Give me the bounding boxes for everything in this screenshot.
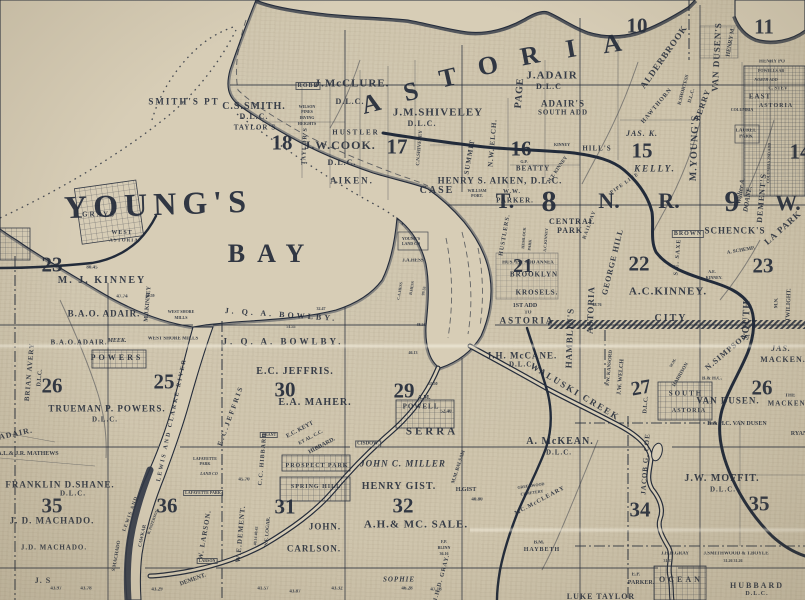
map-label: J.M.SHIVELEY: [393, 108, 483, 119]
map-label: 43.29: [151, 588, 162, 593]
map-label: DOANE.: [742, 185, 753, 212]
map-label: E.C. JEFFRIS.: [256, 367, 333, 377]
map-label: MEEK.: [108, 338, 127, 344]
map-label: C. STEV: [768, 87, 787, 92]
map-label: J.W. WELCH: [616, 359, 625, 395]
map-label: D.L.C.: [745, 591, 768, 597]
map-label: B.M.: [534, 541, 545, 546]
map-label: POWELL: [403, 404, 440, 411]
map-label: N.W. ELCH.: [487, 119, 498, 168]
map-label: J.W. MOFFIT.: [684, 474, 759, 484]
map-label: THE: [785, 394, 796, 399]
map-label: SCHENCK'S: [704, 227, 765, 236]
map-label: S.MACHADO: [112, 540, 122, 571]
map-label: C.N.SHIVELEY: [416, 130, 424, 166]
map-label: B.A.O.ADAIR.: [50, 340, 107, 347]
map-label: SPRING HILL: [291, 484, 341, 490]
map-label: 35: [749, 494, 770, 515]
map-label: C.A.HESS: [396, 282, 403, 300]
map-label: N.: [598, 190, 619, 212]
map-label: S.E. SAXE: [673, 238, 682, 275]
map-label: J.ADAIR: [526, 71, 577, 82]
map-label: JOHN C. MILLER: [360, 460, 446, 469]
map-label: ASTORIA: [109, 239, 139, 244]
map-label: GRAYS: [82, 212, 116, 219]
map-label: HARRISON: [672, 362, 690, 388]
map-label: IRVING: [300, 116, 315, 120]
map-label: PARK: [528, 239, 533, 250]
map-label: HILL'S: [582, 146, 611, 153]
map-label: 99.55: [421, 286, 427, 296]
map-label: O: [475, 51, 500, 81]
map-label: B.A.O. ADAIR.: [68, 310, 141, 319]
map-label: 16: [511, 139, 532, 160]
map-label: LAND CO: [402, 242, 420, 246]
map-label: KROSELS.: [516, 290, 559, 297]
map-label: J.H.D.GRAY: [661, 552, 689, 557]
map-label: ADAIR'S: [541, 100, 585, 109]
map-label: 43.97: [50, 587, 61, 592]
map-label: 26: [42, 376, 63, 397]
map-label: POWELLS AB: [758, 69, 784, 73]
map-label: PIPE LINE: [610, 172, 641, 196]
map-label: SERRA: [406, 427, 458, 438]
map-label: EAST: [749, 94, 771, 101]
map-label: C.S.SMITH.: [222, 102, 286, 112]
map-label: D.L.C: [536, 83, 562, 91]
map-label: HAMBLIN'S: [564, 308, 575, 369]
map-label: 18: [272, 133, 293, 154]
map-label: W.E.DEMENT.: [235, 505, 247, 563]
map-label: D.L.C.: [688, 88, 697, 103]
map-label: ASTORIA: [672, 408, 706, 414]
map-label: A.C.KINNEY.: [629, 287, 707, 298]
map-label: 1ST ADD: [513, 303, 537, 309]
map-label: ADAIR.: [0, 427, 34, 442]
map-label: M.J.KINNEY: [143, 286, 152, 322]
map-label: MACKEN.: [760, 356, 805, 364]
map-label: RYAN: [791, 431, 805, 437]
map-label: SUMMIT: [463, 139, 476, 175]
map-label: HAWTHORN: [640, 87, 673, 125]
map-label: COLUMBIA 2ND ADD: [766, 143, 771, 184]
map-label: 43.87: [289, 590, 300, 595]
map-label: A.C.KINNEY: [543, 228, 549, 252]
map-label: BRIAN AVERY: [24, 342, 36, 401]
map-label: LARSON: [197, 558, 218, 564]
map-label: JAS. K.: [626, 130, 658, 138]
map-label: 31.33: [664, 559, 673, 563]
map-label: N.SIMPSON.: [704, 330, 752, 372]
map-label: 51.55: [287, 325, 296, 329]
map-label: J.McCLURE.: [315, 79, 390, 90]
map-label: J.SMITHWOOD & T.BOYLE: [703, 552, 768, 557]
map-label: HENRY PO: [759, 60, 785, 65]
map-label: LAND CO: [200, 472, 217, 476]
map-label: TAYLOR'S: [234, 125, 277, 132]
map-label: LEWIS AND: [122, 496, 139, 533]
map-label: HENRY GIST.: [362, 482, 437, 492]
map-label: HUSTLERS.: [498, 214, 511, 257]
map-label: 40.80: [471, 498, 482, 503]
map-label: J. D. MACHADO.: [10, 517, 95, 526]
map-label: MILLS: [175, 316, 188, 320]
map-label: HEIGHTS: [298, 122, 316, 126]
map-label: SOUTH ADD: [538, 110, 588, 117]
map-label: 48.34: [417, 323, 426, 327]
map-label: CEMETERY: [520, 489, 543, 496]
map-label: MACKEN.: [768, 401, 805, 408]
map-label: 34: [630, 500, 651, 521]
map-label: W.W.: [503, 189, 521, 195]
map-label: PARKER.: [496, 198, 534, 205]
map-label: G.P.: [520, 160, 527, 164]
map-label: NORTH ADD: [754, 78, 777, 82]
map-label: M.YOUNG'S: [689, 115, 701, 182]
map-label: 40.14 40.42: [253, 526, 259, 545]
map-label: 55.50: [429, 382, 438, 386]
map-label: 23: [753, 256, 774, 277]
map-label: 48.76: [593, 303, 602, 307]
map-label: PAGE: [514, 77, 527, 109]
map-label: BROWN: [672, 230, 704, 238]
map-label: BROOKLYN: [510, 272, 558, 279]
map-label: SMITH'S PT: [148, 98, 219, 107]
map-label: 41.57: [257, 587, 268, 592]
map-label: 36: [157, 496, 178, 517]
map-label: 47.74: [116, 295, 127, 300]
map-label: 45.70: [238, 478, 249, 483]
map-label: 46.13: [409, 351, 418, 355]
map-label: ASTORIA: [759, 103, 793, 109]
map-label: HENRY S. AIKEN, D.L.C.: [438, 177, 563, 186]
map-label: E.P.: [632, 573, 640, 578]
map-label: 43.78: [80, 587, 91, 592]
map-label: HENRY M.: [725, 27, 736, 57]
map-label: CITY: [654, 314, 687, 324]
map-label: JOHN.: [309, 523, 341, 532]
map-label: M.N.: [774, 297, 779, 308]
map-label: R: [518, 41, 541, 70]
map-label: D.L.C.: [92, 417, 118, 424]
map-label: J. S: [35, 577, 51, 585]
map-label: VAN DUSEN'S: [711, 22, 724, 92]
map-label: W. LARSON.: [197, 509, 213, 560]
map-label: LAUREL: [736, 129, 757, 134]
map-label: 80.45: [86, 266, 97, 271]
map-label: A. SCHEMP.: [727, 246, 756, 256]
map-label: A.E.: [708, 270, 716, 274]
map-label: W.F. LOGAR.: [264, 517, 272, 548]
map-label: M. J. KINNEY: [58, 276, 146, 286]
map-label: 23: [42, 255, 63, 276]
map-label: PINES: [301, 110, 313, 114]
map-label: PORT.: [471, 194, 483, 198]
map-label: J.A.HESS: [402, 259, 423, 264]
map-label: ASTORIA: [500, 317, 555, 326]
historical-map-canvas: ASTORIAYOUNG'SBAYT.8N.R.9W.1817161514101…: [0, 0, 805, 600]
map-label: D.L.C.: [642, 396, 649, 414]
map-label: H.GIST: [456, 487, 477, 493]
map-label: CASE: [420, 186, 455, 196]
map-label: A.M.: [418, 395, 431, 401]
map-label: 31.26 31.26: [724, 559, 743, 563]
map-label: CARLSON.: [287, 545, 341, 554]
map-label: PARK: [739, 135, 753, 140]
map-label: WEST: [111, 230, 132, 236]
map-label: D.L.C.: [710, 487, 736, 494]
map-label: PARKER.: [628, 580, 654, 586]
map-label: PROSPECT PARK: [286, 463, 349, 469]
map-label: CISDOW.: [355, 441, 381, 448]
map-label: I: [564, 35, 578, 62]
map-label: J. Q. A. BOWLBY.: [223, 338, 344, 347]
map-label: KINNEY.: [706, 276, 723, 280]
map-label: 10: [627, 16, 648, 37]
map-label: D.L.C.: [509, 362, 535, 369]
map-label: JAS.: [771, 345, 791, 353]
map-label: HUSTLER: [332, 130, 379, 137]
map-label: 31: [275, 497, 296, 518]
map-label: J.D. MACHADO.: [21, 545, 87, 552]
map-label: S: [401, 78, 421, 107]
map-label: P.W. KANSORD: [606, 350, 614, 386]
map-label: DEMENT.: [179, 572, 207, 587]
map-label: D.L.C.: [60, 491, 86, 498]
map-label: HAYBETH: [524, 547, 560, 553]
map-label: A. McKEAN.: [526, 437, 594, 447]
map-label: D.L.C.: [408, 120, 437, 128]
map-label: VAN DUSEN.: [696, 397, 759, 406]
map-label: JACOB G. COE: [640, 433, 651, 495]
map-label: A.H.& MC. SALE.: [364, 520, 468, 531]
map-label: 32: [393, 496, 414, 517]
map-label: 15: [632, 141, 653, 162]
map-label: 17: [387, 137, 408, 158]
map-label: E.A. MAHER.: [278, 398, 351, 408]
map-label: D.L.C.: [546, 450, 572, 457]
map-label: T: [437, 63, 460, 92]
map-label: BEATTY: [516, 166, 550, 173]
map-label: BAY: [228, 241, 317, 267]
map-label: WEST SHORE MILLS: [148, 337, 198, 342]
map-label: 43.32: [331, 587, 342, 592]
map-label: CENTRAL: [549, 218, 595, 226]
map-label: E.C.JEFFRIS: [217, 385, 245, 447]
map-label: J.W.COOK.: [304, 139, 376, 151]
map-label: C.C. HIBBARD: [258, 432, 269, 485]
map-label: M.M. BALSAM: [451, 450, 466, 484]
map-label: F.P.: [441, 540, 447, 544]
map-label: A: [601, 30, 624, 59]
map-label: HUS. 1ST ADD ANNEX: [502, 261, 554, 266]
map-label: D.L.C.: [336, 98, 365, 106]
map-label: B.HESS: [409, 281, 415, 295]
map-label: 11: [754, 17, 774, 38]
map-labels: ASTORIAYOUNG'SBAYT.8N.R.9W.1817161514101…: [0, 0, 805, 600]
map-label: AIKEN.: [330, 177, 374, 186]
map-label: B.& H.C. VAN DUSEN: [707, 421, 766, 427]
map-label: 14: [790, 142, 805, 163]
map-label: D.L.C.: [328, 159, 357, 167]
map-label: W.M.: [669, 358, 677, 368]
map-label: COLUMBIA: [731, 108, 753, 112]
map-label: 25: [154, 372, 175, 393]
map-label: POWERS: [91, 354, 144, 362]
map-label: KELLY.: [634, 165, 676, 174]
map-label: LAFAYETTE PARK: [183, 490, 223, 496]
map-label: 46.28: [401, 587, 412, 592]
map-label: TRUEMAN P. POWERS.: [48, 405, 165, 414]
map-label: 35: [42, 496, 63, 517]
map-label: 32.47: [317, 307, 326, 311]
map-label: SOPHIE: [383, 577, 415, 584]
map-label: D.L.C.: [240, 113, 269, 121]
map-label: PARK: [557, 227, 583, 235]
map-label: WEST SHORE: [168, 310, 195, 314]
map-label: GEORGE HILL: [601, 228, 625, 296]
map-label: 52.40: [440, 410, 451, 415]
map-label: B. PATERSON: [147, 509, 160, 535]
map-label: 29: [394, 381, 415, 402]
map-label: LUKE TAYLOR: [567, 593, 635, 600]
map-label: B.& H.C.: [702, 377, 722, 382]
map-label: 8: [542, 187, 557, 217]
map-label: J.H.D. GRAY.: [433, 554, 451, 600]
map-label: HUBBARD: [730, 582, 784, 590]
map-label: KINNEY: [554, 143, 570, 147]
map-label: BLINN: [438, 546, 451, 550]
map-label: TWILIGHT.: [785, 288, 792, 321]
map-label: OCEAN: [659, 576, 703, 584]
map-label: PARK: [199, 462, 210, 466]
map-label: ASTORIA: [586, 286, 597, 334]
map-label: 47.18: [430, 588, 441, 593]
map-label: R.: [658, 190, 679, 212]
map-label: A.L.& J.R. MATHEWS: [0, 451, 59, 457]
map-label: 22: [629, 254, 650, 275]
map-label: J.H. McCANE.: [487, 352, 558, 361]
map-label: FRANKLIN D.SHANE.: [5, 481, 114, 490]
